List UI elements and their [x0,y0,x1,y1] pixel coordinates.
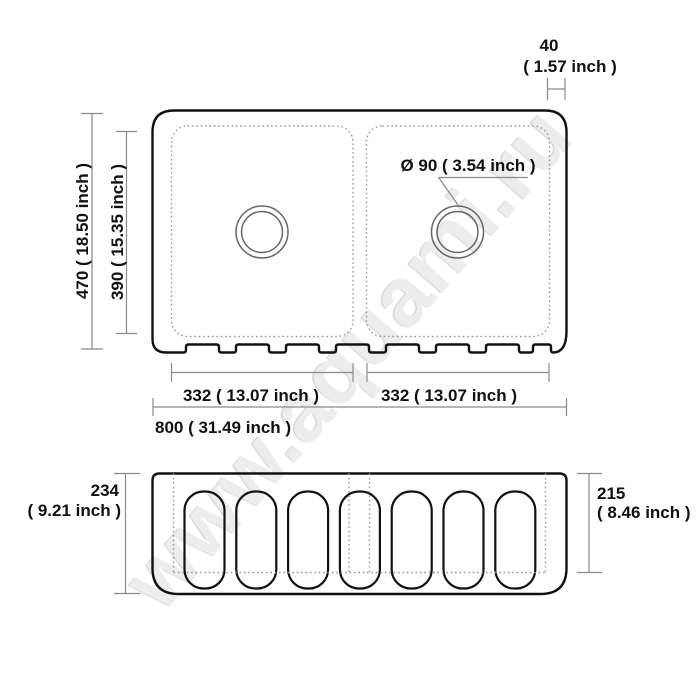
front-view-dotted-projection [174,474,546,573]
inner-height-value: 215 [597,484,625,503]
drawing-stage: www.aquami.ru Ø 90 ( 3.54 inch ) [0,0,700,700]
dimension-apron-height: 234 ( 9.21 inch ) [27,474,140,594]
dimension-overall-depth: 470 ( 18.50 inch ) [73,114,103,350]
apron-height-inches: ( 9.21 inch ) [27,501,121,520]
apron-flute [444,492,484,589]
left-bowl-width-label: 332 ( 13.07 inch ) [183,386,319,405]
right-bowl-width-label: 332 ( 13.07 inch ) [381,386,517,405]
apron-flute [185,492,225,589]
apron-flute [288,492,328,589]
dimension-right-bowl-width: 332 ( 13.07 inch ) [367,363,549,405]
left-drain-hole [236,206,288,258]
apron-height-value: 234 [91,481,120,500]
dimension-inner-height: 215 ( 8.46 inch ) [577,474,691,573]
sink-technical-drawing: Ø 90 ( 3.54 inch ) 40 ( 1.57 inch ) 470 … [0,0,700,700]
apron-flute [340,492,380,589]
dimension-left-bowl-width: 332 ( 13.07 inch ) [172,363,354,405]
inner-height-inches: ( 8.46 inch ) [597,503,691,522]
dimension-bowl-depth: 390 ( 15.35 inch ) [108,132,137,334]
rim-width-value: 40 [540,36,559,55]
bowl-depth-label: 390 ( 15.35 inch ) [108,164,127,300]
apron-flutes [185,492,536,589]
dimension-rim-width: 40 ( 1.57 inch ) [523,36,617,100]
apron-flute [392,492,432,589]
drain-diameter-callout: Ø 90 ( 3.54 inch ) [400,156,535,205]
front-view [153,474,567,595]
top-view-outline [153,111,567,353]
rim-width-inches: ( 1.57 inch ) [523,57,617,76]
apron-flute [236,492,276,589]
callout-leader-line [439,178,458,205]
overall-depth-label: 470 ( 18.50 inch ) [73,163,92,299]
top-view: Ø 90 ( 3.54 inch ) [153,111,567,353]
left-bowl-dotted-outline [172,126,354,337]
apron-flute [495,492,535,589]
overall-width-label: 800 ( 31.49 inch ) [155,418,291,437]
drain-diameter-label: Ø 90 ( 3.54 inch ) [400,156,535,175]
right-drain-hole [432,206,484,258]
